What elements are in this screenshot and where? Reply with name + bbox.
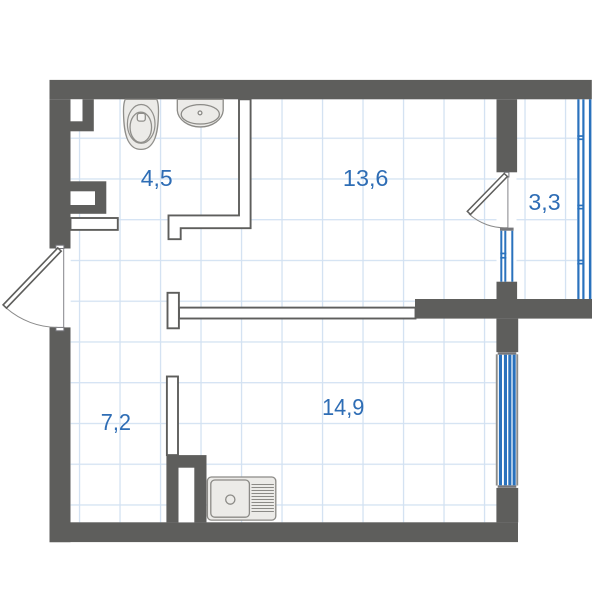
svg-text:7,2: 7,2 xyxy=(101,409,131,435)
svg-text:3,3: 3,3 xyxy=(528,189,560,215)
svg-text:14,9: 14,9 xyxy=(322,394,364,420)
svg-text:13,6: 13,6 xyxy=(343,165,389,191)
svg-text:4,5: 4,5 xyxy=(141,165,173,191)
